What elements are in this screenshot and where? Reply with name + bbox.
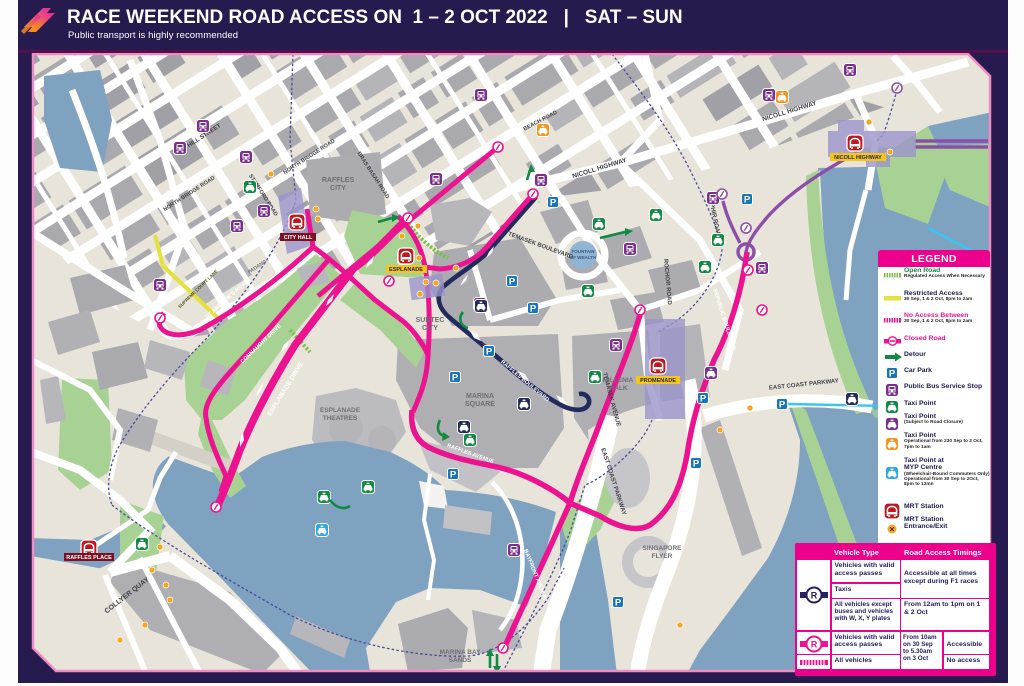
svg-text:CITY: CITY (330, 185, 346, 192)
svg-text:SUNTEC: SUNTEC (416, 317, 445, 324)
svg-text:R: R (811, 591, 818, 601)
svg-text:RAFFLES PLACE: RAFFLES PLACE (66, 555, 112, 561)
svg-text:OF WEALTH: OF WEALTH (570, 255, 596, 260)
svg-text:WALK: WALK (608, 385, 627, 392)
svg-text:FLYER: FLYER (652, 553, 673, 560)
svg-text:ESPLANADE: ESPLANADE (320, 407, 361, 414)
svg-text:THEATRES: THEATRES (323, 415, 358, 422)
svg-text:MARINA: MARINA (466, 393, 494, 400)
svg-text:MARINA BAY: MARINA BAY (440, 649, 481, 656)
svg-text:CITY HALL: CITY HALL (284, 235, 313, 241)
svg-text:NICOLL HIGHWAY: NICOLL HIGHWAY (834, 155, 882, 161)
svg-text:FOUNTAIN: FOUNTAIN (572, 249, 595, 254)
svg-text:ESPLANADE: ESPLANADE (389, 267, 423, 273)
svg-text:SINGAPORE: SINGAPORE (642, 545, 682, 552)
svg-text:PROMENADE: PROMENADE (640, 378, 676, 384)
svg-text:CITY: CITY (422, 325, 438, 332)
svg-text:R: R (811, 640, 818, 650)
svg-text:MILLENIA: MILLENIA (603, 377, 634, 384)
svg-text:RAFFLES: RAFFLES (322, 177, 355, 184)
svg-text:SQUARE: SQUARE (465, 401, 495, 408)
svg-text:SANDS: SANDS (449, 657, 472, 664)
